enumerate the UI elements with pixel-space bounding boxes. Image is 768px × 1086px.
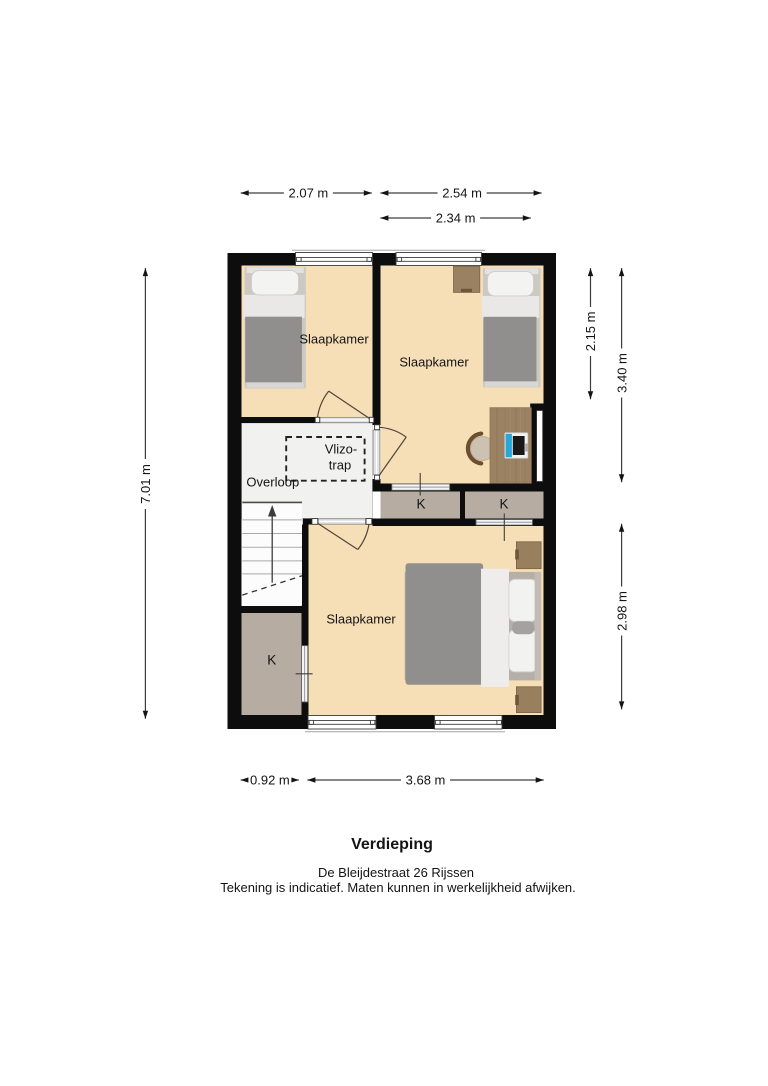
- svg-text:Slaapkamer: Slaapkamer: [326, 612, 396, 627]
- svg-text:Vlizo-: Vlizo-: [325, 442, 358, 457]
- svg-text:K: K: [416, 497, 425, 512]
- svg-text:Overloop: Overloop: [246, 475, 299, 490]
- svg-text:Tekening is indicatief. Maten: Tekening is indicatief. Maten kunnen in …: [220, 880, 576, 895]
- svg-text:2.15 m: 2.15 m: [583, 312, 598, 352]
- svg-text:2.34 m: 2.34 m: [436, 211, 476, 226]
- svg-text:De Bleijdestraat 26 Rijssen: De Bleijdestraat 26 Rijssen: [318, 865, 474, 880]
- svg-text:2.54 m: 2.54 m: [442, 186, 482, 201]
- svg-text:2.07 m: 2.07 m: [289, 186, 329, 201]
- svg-text:K: K: [499, 497, 508, 512]
- svg-text:Verdieping: Verdieping: [351, 836, 433, 853]
- svg-text:Slaapkamer: Slaapkamer: [399, 355, 469, 370]
- svg-text:trap: trap: [329, 458, 351, 473]
- svg-text:0.92 m: 0.92 m: [250, 773, 290, 788]
- svg-text:2.98 m: 2.98 m: [614, 591, 629, 631]
- svg-text:K: K: [267, 653, 276, 668]
- svg-text:3.68 m: 3.68 m: [406, 773, 446, 788]
- svg-text:3.40 m: 3.40 m: [614, 353, 629, 393]
- svg-text:Slaapkamer: Slaapkamer: [299, 332, 369, 347]
- svg-text:7.01 m: 7.01 m: [138, 464, 153, 504]
